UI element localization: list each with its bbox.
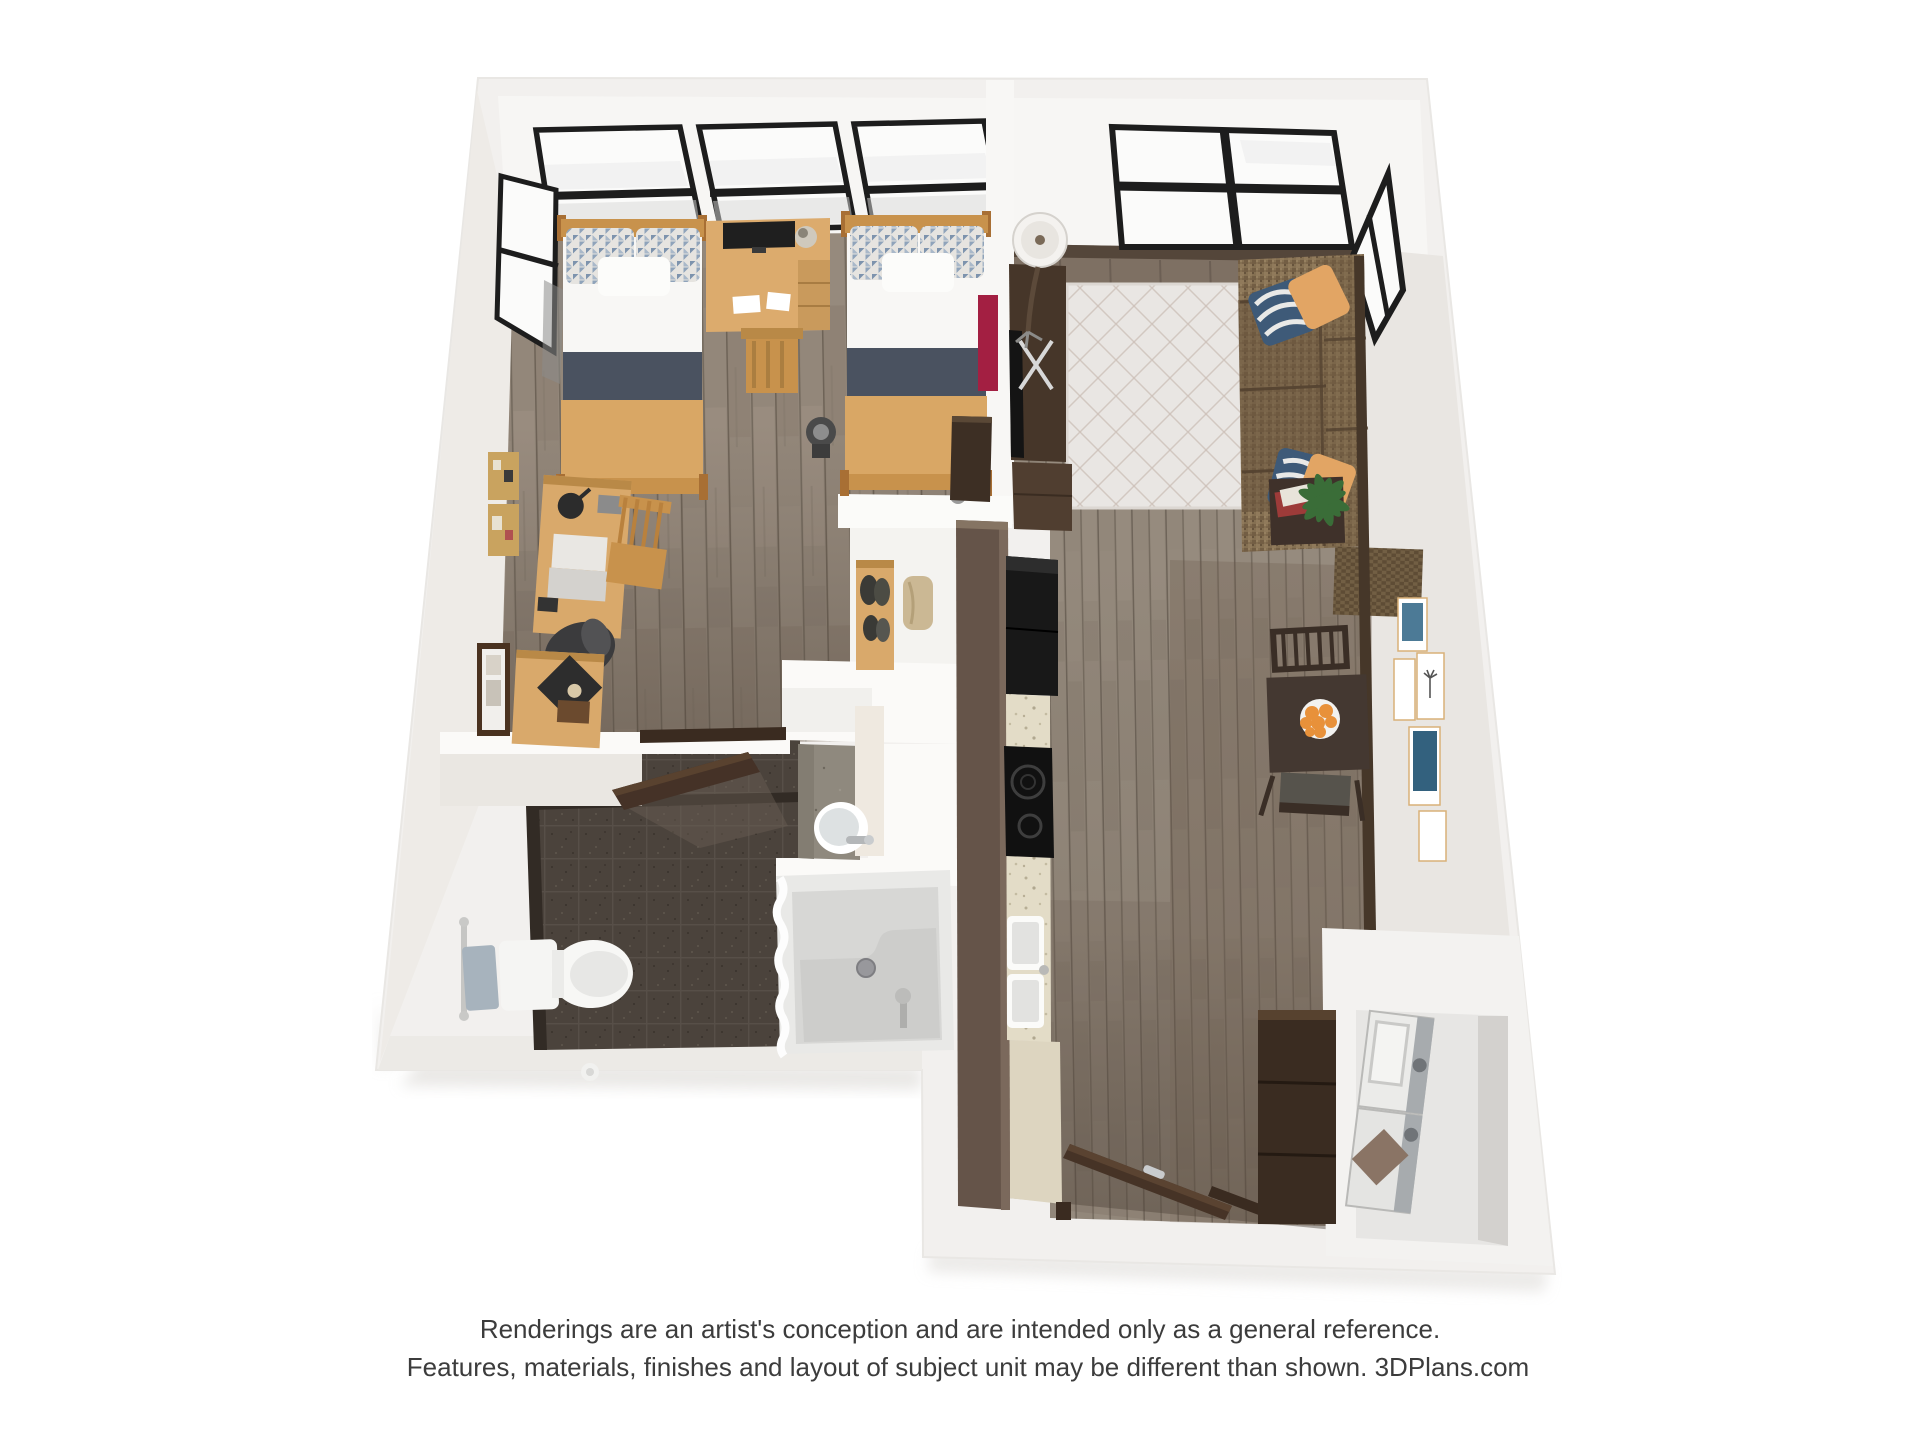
svg-text:Renderings are an artist's con: Renderings are an artist's conception an… (480, 1314, 1440, 1344)
svg-text:Features, materials, finishes: Features, materials, finishes and layout… (407, 1352, 1529, 1382)
